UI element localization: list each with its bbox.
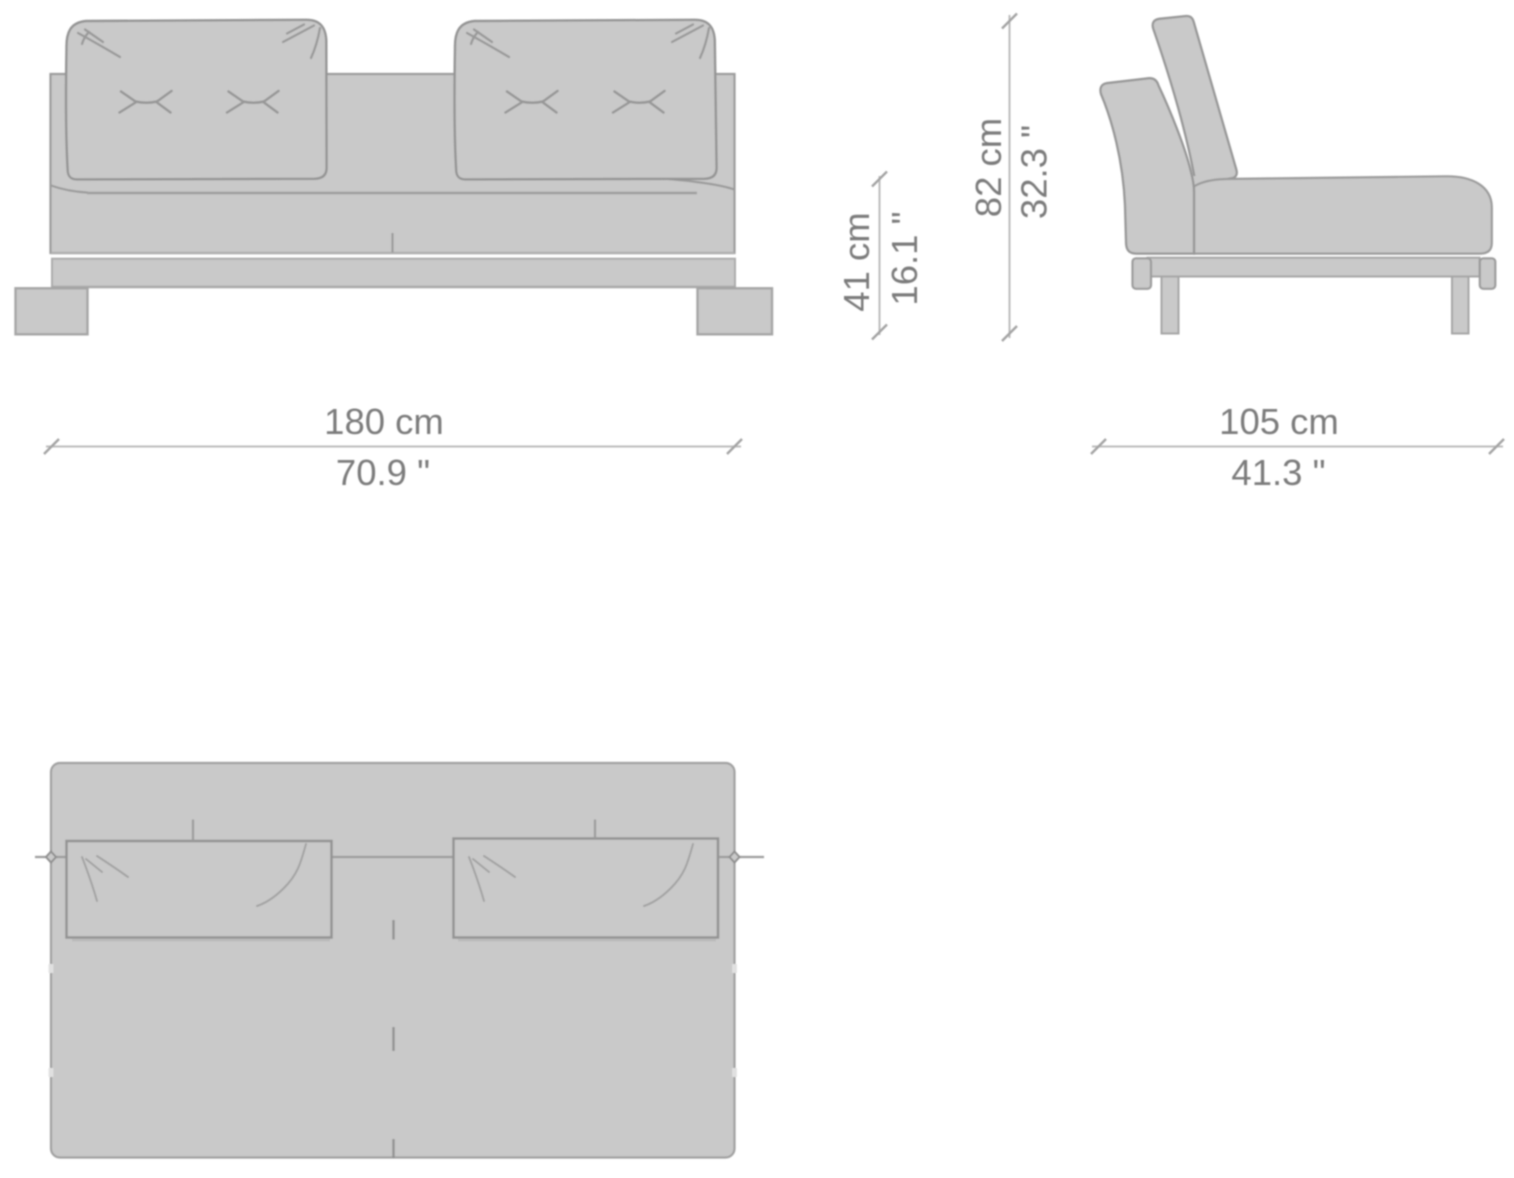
svg-text:41.3 ": 41.3 " — [1231, 452, 1325, 493]
svg-text:70.9 ": 70.9 " — [336, 452, 430, 493]
svg-text:105 cm: 105 cm — [1219, 401, 1339, 442]
svg-text:32.3 ": 32.3 " — [1014, 125, 1055, 219]
svg-text:41 cm: 41 cm — [836, 212, 877, 311]
svg-text:82 cm: 82 cm — [968, 118, 1009, 217]
svg-text:180 cm: 180 cm — [324, 401, 444, 442]
svg-text:16.1 ": 16.1 " — [884, 211, 925, 305]
